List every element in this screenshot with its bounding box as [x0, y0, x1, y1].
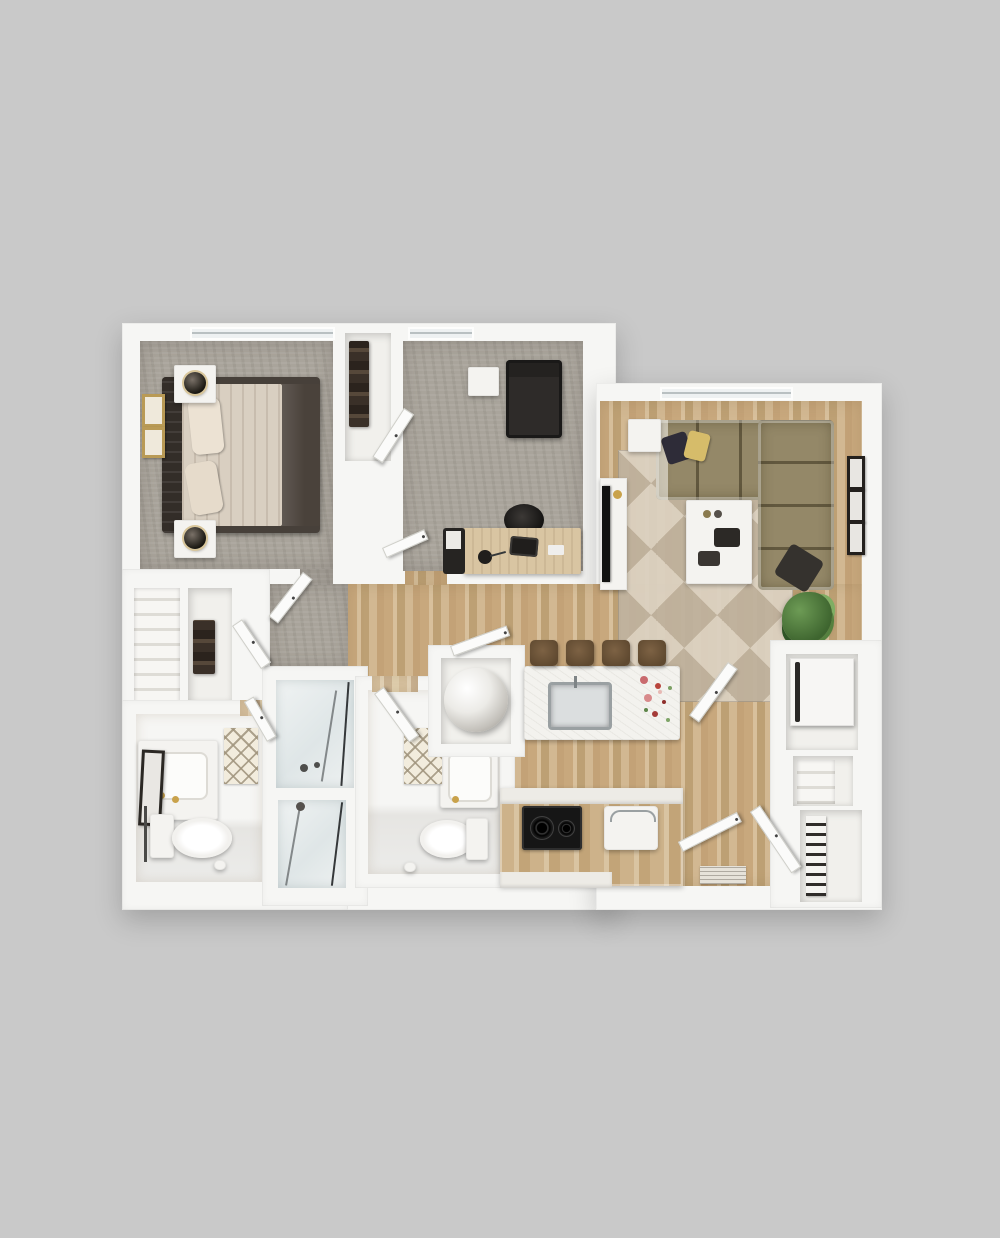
kitchen-countertop [500, 788, 683, 804]
washer-dryer [790, 658, 854, 726]
coffee-table-decor [714, 510, 722, 518]
kitchen-kickplate [500, 872, 612, 888]
cooktop-burner [530, 816, 554, 840]
side-table [468, 367, 499, 396]
coffee-table-remote [698, 551, 720, 566]
bar-stool [638, 640, 666, 666]
wall-art-frame [847, 456, 865, 490]
shelf-unit [797, 760, 835, 804]
toilet-tank [150, 814, 174, 858]
water-heater [444, 668, 508, 732]
faucet-handle [452, 796, 459, 803]
toilet-paper [214, 860, 226, 870]
office-window [408, 327, 474, 340]
bed-pillow [187, 396, 225, 455]
bar-stool [566, 640, 594, 666]
toilet-tank [466, 818, 488, 860]
bath-mat [224, 728, 258, 784]
file-cabinet-paper [446, 531, 461, 549]
living-room-window [660, 387, 793, 400]
table-lamp [184, 372, 206, 394]
bar-stool [602, 640, 630, 666]
office-door-opening [405, 571, 447, 585]
toilet-paper [404, 862, 416, 872]
table-lamp [184, 527, 206, 549]
laptop [509, 536, 539, 557]
closet-hanging-items [193, 620, 215, 674]
bathroom-2-sink-basin [448, 752, 492, 802]
lounge-chair [506, 360, 562, 438]
cooktop-burner [558, 820, 575, 837]
coffee-table-decor [703, 510, 711, 518]
bed-foot-throw [282, 384, 320, 526]
doormat [700, 866, 746, 884]
towel-bar [144, 806, 147, 862]
appliance-handle [610, 810, 656, 822]
end-table [628, 419, 661, 452]
bar-stool [530, 640, 558, 666]
linen-closet [134, 588, 180, 706]
island-sink [548, 682, 612, 730]
wall-art-frame [847, 521, 865, 555]
toilet-bowl [172, 818, 232, 858]
decor-vase [613, 490, 622, 499]
wall-art-frame [847, 489, 865, 523]
flower-bouquet [640, 676, 648, 684]
faucet-handle [172, 796, 179, 803]
island-faucet [574, 676, 577, 688]
floor-plan-scene [0, 0, 1000, 1238]
towel-shelves [806, 816, 826, 896]
wall-art-frame [142, 427, 165, 458]
wall-art-frame [142, 394, 165, 427]
tv [602, 486, 610, 582]
notepad [548, 545, 564, 555]
bedroom-window [190, 327, 335, 340]
shower-head [296, 802, 305, 811]
bedroom-vestibule-floor [270, 584, 350, 668]
wardrobe-shelves [349, 341, 369, 427]
coffee-table-tray [714, 528, 740, 547]
cooktop [522, 806, 582, 850]
shower-faucet [300, 764, 308, 772]
shower-handle [314, 762, 320, 768]
